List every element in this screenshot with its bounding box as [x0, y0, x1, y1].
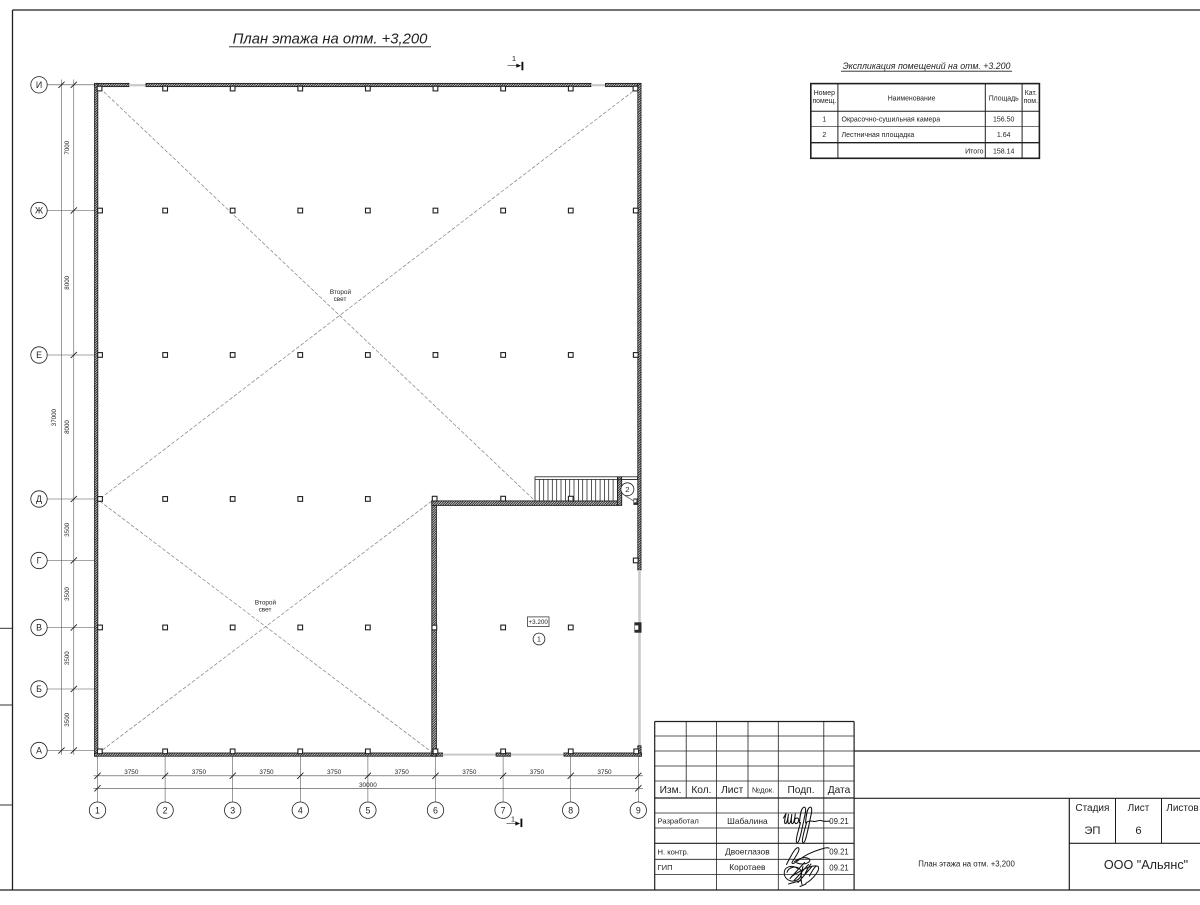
- svg-text:№док.: №док.: [752, 786, 774, 795]
- svg-text:Наименование: Наименование: [888, 95, 936, 102]
- svg-text:3750: 3750: [462, 769, 477, 776]
- svg-text:3750: 3750: [530, 769, 545, 776]
- svg-text:свет: свет: [259, 607, 272, 614]
- svg-text:1: 1: [537, 637, 541, 644]
- svg-text:1.64: 1.64: [997, 132, 1011, 139]
- svg-text:В: В: [36, 623, 42, 633]
- svg-text:Ж: Ж: [35, 206, 43, 216]
- svg-text:3500: 3500: [64, 712, 71, 726]
- svg-text:Шабалина: Шабалина: [727, 816, 768, 826]
- svg-text:Е: Е: [36, 350, 42, 360]
- svg-text:пом.: пом.: [1024, 98, 1038, 105]
- svg-text:156.50: 156.50: [993, 117, 1015, 124]
- svg-text:3750: 3750: [395, 769, 410, 776]
- svg-text:Кол.: Кол.: [691, 785, 711, 796]
- svg-text:Подп.: Подп.: [787, 785, 814, 796]
- svg-text:2: 2: [822, 132, 826, 139]
- svg-text:3750: 3750: [327, 769, 342, 776]
- svg-text:Кат.: Кат.: [1025, 90, 1037, 97]
- svg-text:Дата: Дата: [828, 785, 851, 796]
- svg-text:Лестничная площадка: Лестничная площадка: [842, 132, 915, 139]
- svg-text:И: И: [36, 80, 42, 90]
- svg-text:30000: 30000: [359, 782, 377, 789]
- svg-text:+3.200: +3.200: [528, 619, 548, 626]
- svg-text:ЭП: ЭП: [1084, 825, 1100, 837]
- svg-text:3500: 3500: [64, 587, 71, 601]
- svg-text:Второй: Второй: [255, 599, 277, 607]
- svg-text:Н. контр.: Н. контр.: [658, 847, 689, 856]
- svg-text:Стадия: Стадия: [1075, 803, 1109, 814]
- svg-text:158.14: 158.14: [993, 148, 1015, 155]
- svg-text:1: 1: [512, 54, 516, 63]
- svg-text:8000: 8000: [64, 420, 71, 434]
- svg-text:3750: 3750: [124, 769, 139, 776]
- svg-text:1: 1: [95, 805, 100, 815]
- svg-text:Окрасочно-сушильная камера: Окрасочно-сушильная камера: [842, 117, 941, 124]
- svg-text:7: 7: [501, 805, 506, 815]
- svg-text:Г: Г: [37, 556, 42, 566]
- svg-text:9: 9: [636, 805, 641, 815]
- svg-text:ООО "Альянс": ООО "Альянс": [1104, 858, 1188, 872]
- svg-text:Итого: Итого: [965, 148, 983, 155]
- svg-text:Номер: Номер: [814, 90, 835, 97]
- svg-text:Второй: Второй: [330, 288, 352, 296]
- svg-text:ГИП: ГИП: [658, 863, 673, 872]
- svg-text:1: 1: [822, 117, 826, 124]
- svg-text:Лист: Лист: [1128, 803, 1150, 814]
- svg-text:2: 2: [625, 485, 629, 494]
- svg-text:6: 6: [433, 805, 438, 815]
- svg-text:37000: 37000: [51, 408, 58, 426]
- svg-text:Б: Б: [36, 684, 42, 694]
- svg-text:8: 8: [568, 805, 573, 815]
- svg-text:План этажа на отм. +3,200: План этажа на отм. +3,200: [918, 859, 1015, 868]
- svg-text:3500: 3500: [64, 522, 71, 536]
- svg-text:6: 6: [1135, 825, 1141, 837]
- svg-text:Коротаев: Коротаев: [729, 862, 766, 872]
- svg-text:Экспликация помещений на отм.: Экспликация помещений на отм. +3.200: [843, 61, 1011, 71]
- svg-text:1: 1: [511, 814, 515, 823]
- svg-text:Изм.: Изм.: [660, 785, 682, 796]
- svg-text:09.21: 09.21: [829, 864, 849, 873]
- svg-text:8000: 8000: [64, 275, 71, 289]
- svg-text:09.21: 09.21: [829, 817, 849, 826]
- svg-text:4: 4: [298, 805, 303, 815]
- svg-text:3750: 3750: [192, 769, 207, 776]
- svg-text:Площадь: Площадь: [989, 95, 1019, 102]
- svg-text:свет: свет: [334, 296, 347, 303]
- svg-text:3750: 3750: [259, 769, 274, 776]
- svg-text:Листов: Листов: [1166, 803, 1199, 814]
- svg-text:А: А: [36, 746, 42, 756]
- svg-text:3750: 3750: [597, 769, 612, 776]
- svg-text:3500: 3500: [64, 651, 71, 665]
- svg-text:2: 2: [163, 805, 168, 815]
- svg-text:5: 5: [365, 805, 370, 815]
- svg-text:7000: 7000: [64, 140, 71, 154]
- svg-text:План этажа на отм. +3,200: План этажа на отм. +3,200: [233, 32, 428, 48]
- svg-text:Двоеглазов: Двоеглазов: [725, 847, 770, 857]
- svg-text:09.21: 09.21: [829, 848, 849, 857]
- svg-text:Д: Д: [36, 494, 42, 504]
- svg-text:Лист: Лист: [721, 785, 743, 796]
- svg-text:Разработал: Разработал: [658, 817, 699, 826]
- svg-text:3: 3: [230, 805, 235, 815]
- svg-text:помещ.: помещ.: [812, 98, 836, 105]
